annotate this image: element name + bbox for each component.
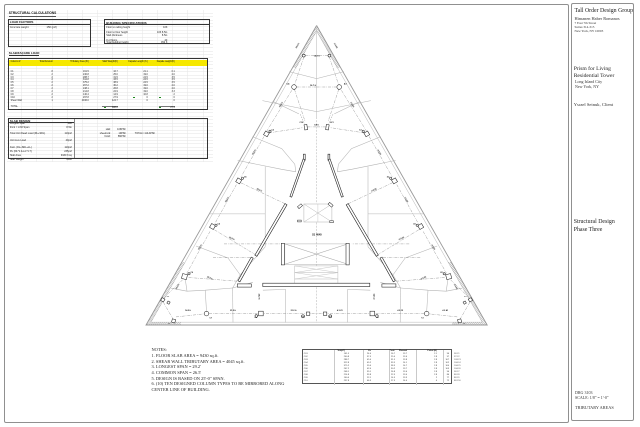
- svg-text:C1: C1: [168, 323, 170, 325]
- svg-text:C1: C1: [167, 296, 169, 298]
- svg-text:24.2 ft: 24.2 ft: [258, 294, 261, 300]
- svg-text:C4: C4: [287, 82, 291, 85]
- svg-text:29.2 ft: 29.2 ft: [224, 196, 230, 203]
- svg-text:S1 4045: S1 4045: [312, 232, 322, 236]
- svg-text:21.2 ft: 21.2 ft: [291, 309, 297, 312]
- svg-text:25.5 ft: 25.5 ft: [256, 187, 263, 192]
- svg-text:16.8 ft: 16.8 ft: [314, 54, 320, 57]
- svg-text:C6: C6: [191, 272, 193, 274]
- svg-text:C3: C3: [272, 129, 274, 131]
- svg-text:25.5 ft: 25.5 ft: [228, 236, 235, 241]
- svg-text:C6: C6: [218, 223, 220, 225]
- svg-text:29.2 ft: 29.2 ft: [251, 149, 257, 156]
- svg-text:14.3 ft: 14.3 ft: [185, 309, 191, 312]
- svg-text:8.8 ft: 8.8 ft: [314, 124, 319, 127]
- svg-text:C9: C9: [302, 316, 304, 318]
- svg-text:29.2 ft: 29.2 ft: [295, 42, 301, 49]
- svg-text:C7: C7: [210, 317, 212, 319]
- svg-text:C10: C10: [300, 122, 303, 124]
- svg-text:25.5 ft: 25.5 ft: [206, 275, 213, 280]
- svg-text:C8: C8: [255, 317, 257, 319]
- svg-text:C5: C5: [244, 176, 246, 178]
- svg-text:21.2 ft: 21.2 ft: [230, 309, 236, 312]
- svg-text:16.7 ft: 16.7 ft: [310, 84, 316, 87]
